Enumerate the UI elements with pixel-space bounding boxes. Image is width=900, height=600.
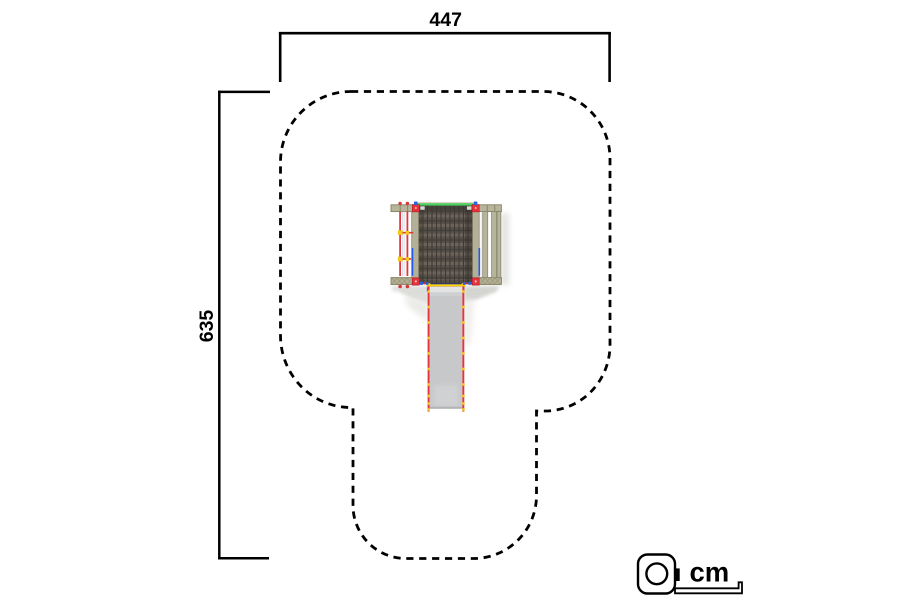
- svg-text:cm: cm: [690, 557, 730, 588]
- svg-text:447: 447: [429, 9, 462, 31]
- svg-text:635: 635: [196, 310, 218, 343]
